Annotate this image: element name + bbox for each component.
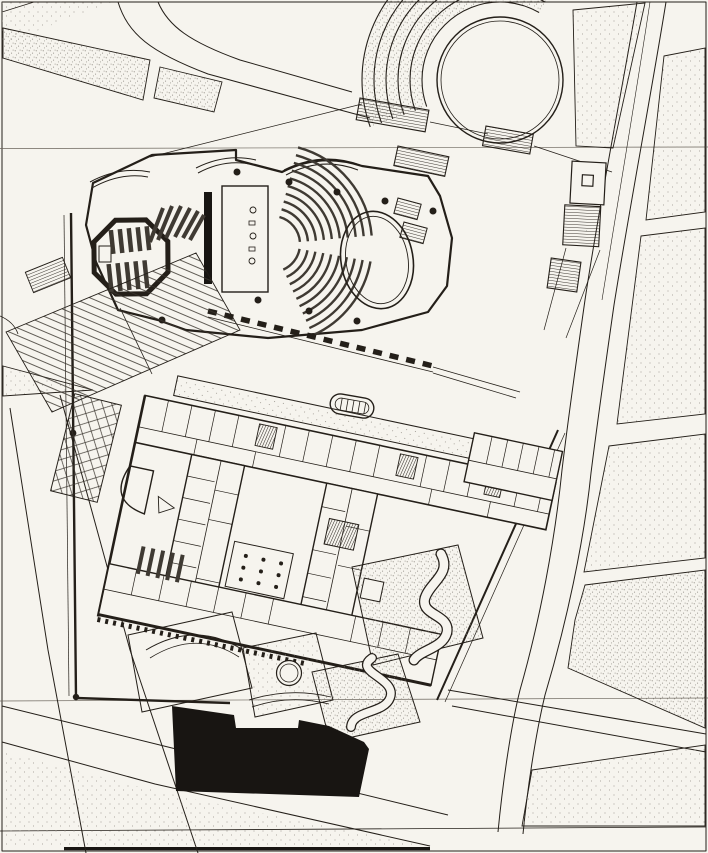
recital-stage-door (99, 246, 111, 262)
stair-hatch (324, 519, 359, 551)
stair-hatch (396, 454, 418, 479)
site-plan-drawing (0, 0, 708, 853)
pier-hatch (547, 258, 581, 292)
pier-hatch (563, 205, 601, 247)
stair-hatch (255, 424, 277, 449)
boundary-dot (73, 694, 79, 700)
garden-pavilion-square (360, 578, 384, 602)
plan-sheet (0, 0, 708, 853)
